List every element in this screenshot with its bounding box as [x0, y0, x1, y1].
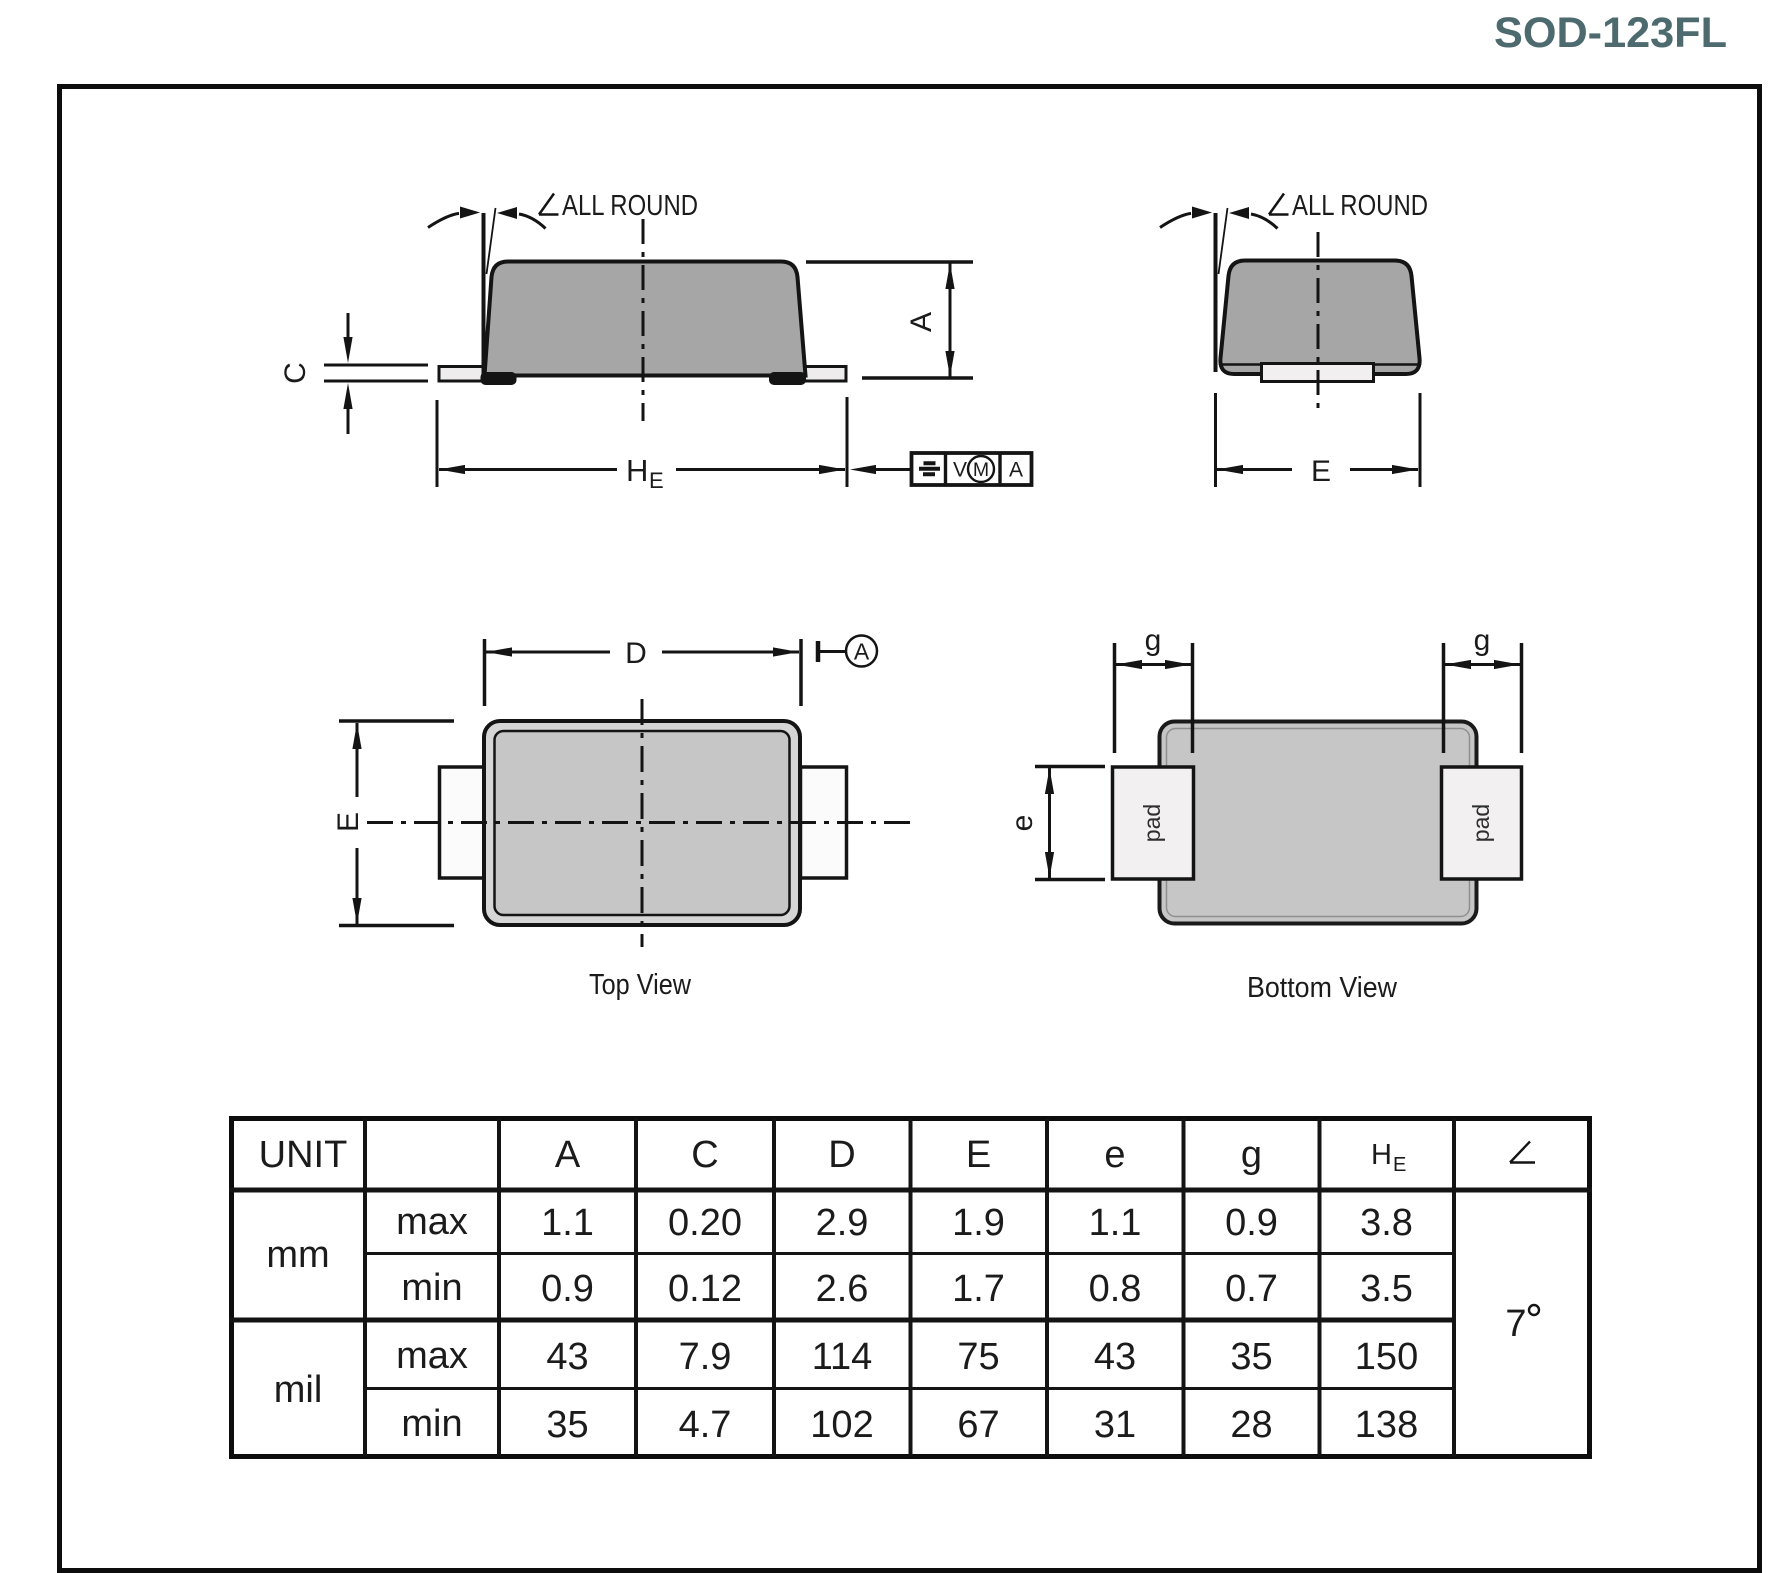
svg-text:35: 35: [546, 1404, 588, 1446]
svg-text:UNIT: UNIT: [259, 1134, 348, 1176]
svg-text:pad: pad: [1139, 804, 1165, 842]
svg-text:0.8: 0.8: [1089, 1268, 1142, 1310]
svg-text:102: 102: [810, 1404, 873, 1446]
svg-text:2.9: 2.9: [816, 1202, 869, 1244]
svg-text:pad: pad: [1468, 804, 1494, 842]
svg-text:ALL ROUND: ALL ROUND: [1292, 190, 1428, 222]
svg-text:1.1: 1.1: [541, 1202, 594, 1244]
svg-text:138: 138: [1355, 1404, 1418, 1446]
svg-text:A: A: [905, 312, 938, 332]
svg-text:0.12: 0.12: [668, 1268, 742, 1310]
svg-text:75: 75: [957, 1336, 999, 1378]
svg-text:35: 35: [1230, 1336, 1272, 1378]
svg-text:3.8: 3.8: [1360, 1202, 1413, 1244]
svg-text:C: C: [279, 362, 312, 384]
svg-text:D: D: [828, 1134, 855, 1176]
svg-text:4.7: 4.7: [679, 1404, 732, 1446]
svg-text:V: V: [953, 459, 967, 482]
svg-text:43: 43: [546, 1336, 588, 1378]
svg-text:E: E: [332, 812, 365, 832]
svg-text:max: max: [396, 1335, 468, 1377]
svg-text:g: g: [1474, 624, 1491, 657]
svg-text:114: 114: [812, 1336, 873, 1378]
svg-text:e: e: [1006, 815, 1039, 832]
svg-text:D: D: [625, 637, 647, 670]
svg-text:g: g: [1145, 624, 1162, 657]
svg-text:2.6: 2.6: [816, 1268, 869, 1310]
svg-text:e: e: [1104, 1134, 1125, 1176]
svg-text:E: E: [1393, 1154, 1406, 1176]
svg-text:1.7: 1.7: [952, 1268, 1005, 1310]
svg-text:min: min: [401, 1403, 462, 1445]
svg-text:A: A: [555, 1134, 581, 1176]
svg-text:Top View: Top View: [589, 969, 692, 1001]
svg-text:0.7: 0.7: [1225, 1268, 1278, 1310]
svg-text:A: A: [854, 639, 870, 665]
svg-text:C: C: [691, 1134, 718, 1176]
svg-text:0.20: 0.20: [668, 1202, 742, 1244]
svg-text:g: g: [1241, 1134, 1262, 1176]
svg-text:min: min: [401, 1267, 462, 1309]
svg-text:67: 67: [957, 1404, 999, 1446]
svg-text:1.9: 1.9: [952, 1202, 1005, 1244]
svg-text:max: max: [396, 1201, 468, 1243]
svg-text:0.9: 0.9: [1225, 1202, 1278, 1244]
svg-text:H: H: [626, 453, 648, 488]
svg-text:7: 7: [1505, 1303, 1526, 1345]
svg-text:0.9: 0.9: [541, 1268, 594, 1310]
svg-text:E: E: [649, 468, 664, 493]
svg-text:SOD-123FL: SOD-123FL: [1494, 9, 1727, 57]
svg-text:7.9: 7.9: [679, 1336, 732, 1378]
svg-text:43: 43: [1094, 1336, 1136, 1378]
svg-text:Bottom View: Bottom View: [1247, 972, 1398, 1004]
svg-text:ALL ROUND: ALL ROUND: [562, 190, 698, 222]
svg-text:H: H: [1371, 1139, 1392, 1171]
svg-text:E: E: [1311, 455, 1331, 488]
svg-text:150: 150: [1355, 1336, 1418, 1378]
svg-text:A: A: [1009, 459, 1023, 482]
svg-text:31: 31: [1094, 1404, 1136, 1446]
svg-text:mm: mm: [266, 1234, 329, 1276]
svg-text:1.1: 1.1: [1089, 1202, 1142, 1244]
svg-text:3.5: 3.5: [1360, 1268, 1413, 1310]
svg-text:28: 28: [1230, 1404, 1272, 1446]
svg-text:mil: mil: [274, 1369, 323, 1411]
svg-text:M: M: [973, 459, 989, 481]
svg-text:E: E: [966, 1134, 991, 1176]
